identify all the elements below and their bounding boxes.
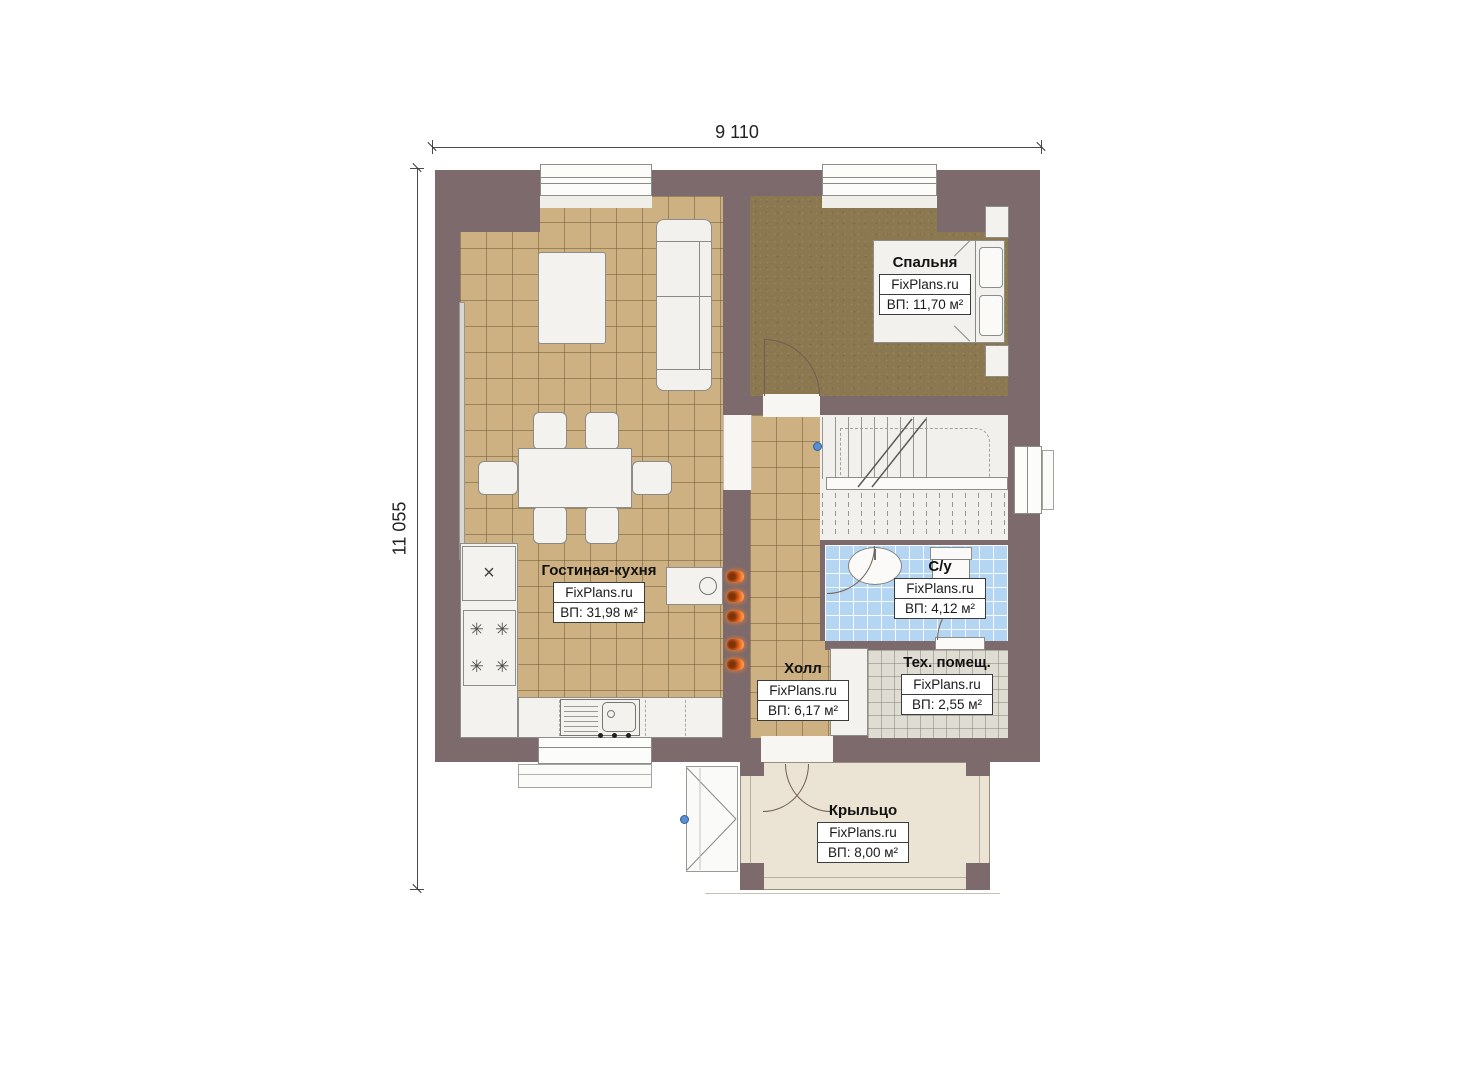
porch-ground-line	[705, 893, 1000, 894]
wall-stairs-bath	[820, 540, 1008, 545]
sink-drain-icon	[607, 710, 615, 718]
hall-corridor-floor	[750, 415, 820, 640]
dimension-height-label: 11 055	[390, 474, 411, 584]
room-label-bathroom: С/у FixPlans.ru ВП: 4,12 м²	[884, 558, 996, 619]
wall-hook-icon	[727, 611, 744, 622]
room-label-hall: Холл FixPlans.ru ВП: 6,17 м²	[748, 660, 858, 721]
sink-bowl-icon	[602, 702, 636, 732]
dimension-line-top	[432, 147, 1042, 148]
front-door-opening	[761, 736, 833, 764]
room-area: ВП: 4,12 м²	[894, 598, 986, 619]
window-recess	[540, 196, 652, 208]
steps-marker-dot	[680, 815, 689, 824]
stove-burner-icon: ✳	[495, 658, 509, 675]
brand-watermark: FixPlans.ru	[817, 822, 909, 843]
porch-column	[740, 863, 764, 890]
brand-watermark: FixPlans.ru	[757, 680, 849, 701]
sofa-line	[657, 369, 711, 370]
wall-hook-icon	[727, 639, 744, 650]
wall-hook-icon	[727, 571, 744, 582]
room-name: Гостиная-кухня	[542, 562, 657, 579]
counter-divider	[645, 700, 646, 736]
room-name: Крыльцо	[829, 802, 897, 819]
porch-column	[740, 762, 764, 776]
room-name: Спальня	[893, 254, 958, 271]
sofa-line	[699, 241, 700, 369]
dining-chair	[585, 412, 619, 450]
kitchen-sink	[560, 699, 640, 736]
wall-pier-top-left	[435, 170, 540, 232]
brand-watermark: FixPlans.ru	[901, 674, 993, 695]
brand-watermark: FixPlans.ru	[879, 274, 971, 295]
entrance-steps-lines	[686, 766, 738, 872]
brand-watermark: FixPlans.ru	[553, 582, 645, 603]
stove-burner-icon: ✳	[470, 621, 484, 638]
dining-chair	[533, 412, 567, 450]
room-area: ВП: 8,00 м²	[817, 842, 909, 863]
brand-watermark: FixPlans.ru	[894, 578, 986, 599]
sink-drainer-icon	[564, 702, 598, 732]
porch-column	[966, 762, 990, 776]
dining-chair	[478, 461, 518, 495]
counter-divider	[685, 700, 686, 736]
room-area: ВП: 31,98 м²	[553, 602, 645, 623]
nightstand	[985, 206, 1009, 238]
porch-column	[966, 863, 990, 890]
room-name: Холл	[784, 660, 822, 677]
sofa-line	[657, 241, 711, 242]
nightstand	[985, 345, 1009, 377]
window-sill-right	[1042, 450, 1054, 510]
radiator-icon	[459, 302, 465, 560]
faucet-dot-icon	[626, 733, 631, 738]
room-area: ВП: 6,17 м²	[757, 700, 849, 721]
window-kitchen-bottom	[538, 736, 652, 764]
bedroom-door-opening	[763, 394, 820, 417]
window-frame-line	[541, 183, 651, 184]
floor-plan-canvas: 9 110 11 055	[0, 0, 1474, 1080]
coffee-table	[538, 252, 606, 344]
dining-chair	[585, 506, 619, 544]
window-frame-line	[823, 183, 936, 184]
window-frame-line	[539, 747, 651, 748]
room-area: ВП: 11,70 м²	[879, 294, 971, 315]
sofa-line	[657, 296, 711, 297]
kitchen-cabinet	[666, 567, 723, 605]
room-name: Тех. помещ.	[903, 654, 991, 671]
fridge-icon: ×	[462, 546, 516, 601]
hob-circle-icon	[699, 577, 717, 595]
dining-chair	[632, 461, 672, 495]
opening-living-hall	[723, 415, 752, 490]
dining-chair	[533, 506, 567, 544]
window-frame-line	[823, 177, 936, 178]
window-stairwell-right	[1014, 446, 1042, 514]
room-label-tech: Тех. помещ. FixPlans.ru ВП: 2,55 м²	[888, 654, 1006, 715]
window-bedroom-top	[822, 164, 937, 196]
sill-line	[519, 774, 651, 775]
room-label-porch: Крыльцо FixPlans.ru ВП: 8,00 м²	[805, 802, 921, 863]
stair-marker-dot	[813, 442, 822, 451]
wall-hall-bath	[820, 540, 825, 641]
window-living-top	[540, 164, 652, 196]
dining-table	[518, 448, 632, 508]
window-frame-line	[1027, 447, 1028, 513]
room-label-bedroom: Спальня FixPlans.ru ВП: 11,70 м²	[867, 254, 983, 315]
window-sill-bottom	[518, 764, 652, 788]
room-name: С/у	[928, 558, 951, 575]
window-recess	[822, 196, 937, 208]
faucet-dot-icon	[598, 733, 603, 738]
wall-hook-icon	[727, 591, 744, 602]
stove-burner-icon: ✳	[495, 621, 509, 638]
stair-break-line	[820, 415, 1010, 540]
wall-living-bedroom	[723, 192, 750, 415]
faucet-dot-icon	[612, 733, 617, 738]
room-area: ВП: 2,55 м²	[901, 694, 993, 715]
wall-hook-icon	[727, 659, 744, 670]
window-frame-line	[541, 177, 651, 178]
dimension-width-label: 9 110	[682, 122, 792, 143]
stove-icon: ✳ ✳ ✳ ✳	[463, 610, 516, 686]
room-label-living: Гостиная-кухня FixPlans.ru ВП: 31,98 м²	[540, 562, 658, 623]
dimension-line-left	[417, 168, 418, 890]
stove-burner-icon: ✳	[470, 658, 484, 675]
sofa	[656, 219, 712, 391]
